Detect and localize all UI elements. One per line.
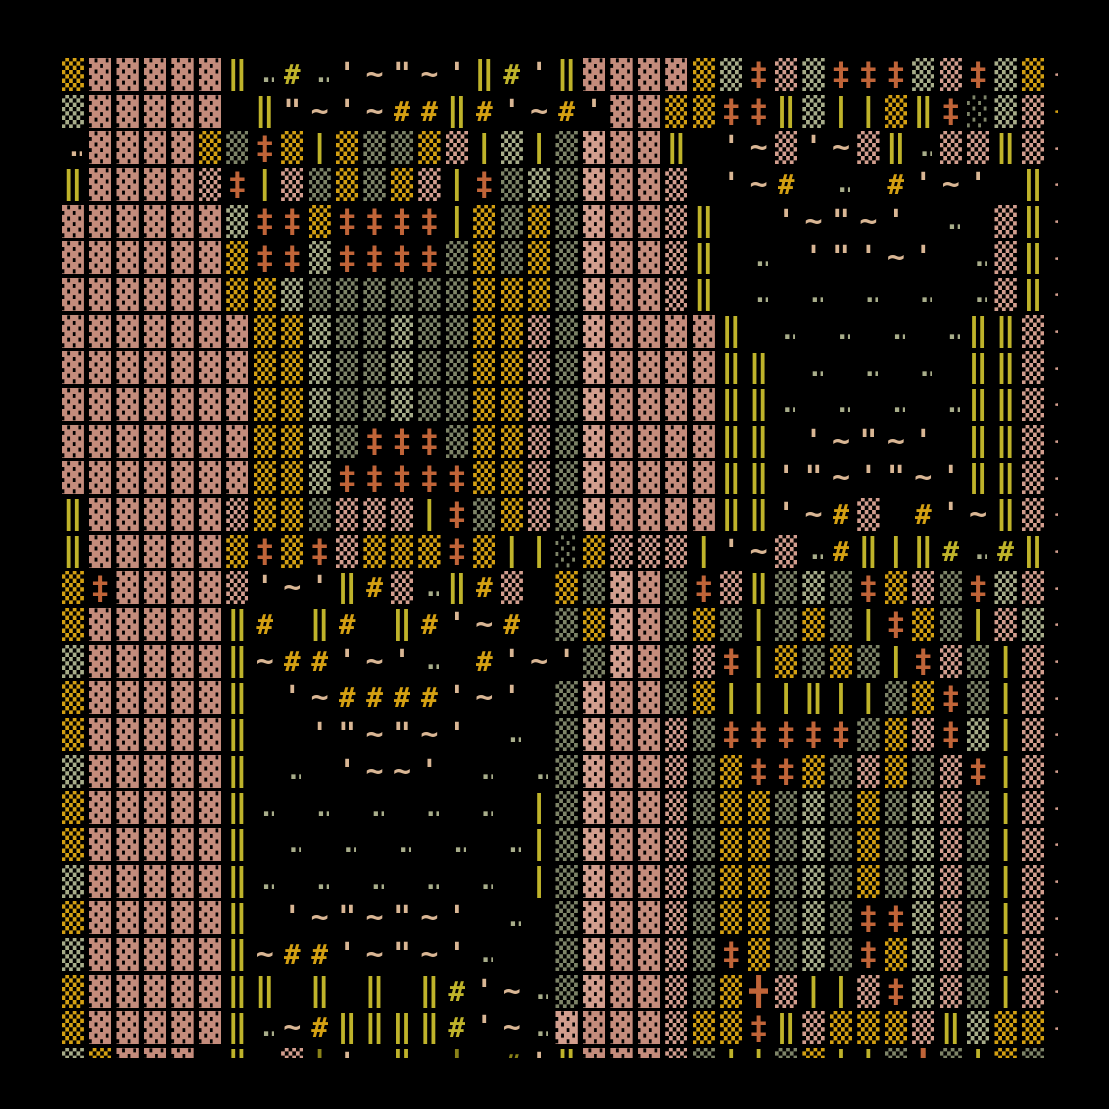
glyph-cell: ▒ [964,129,991,166]
glyph-cell [882,496,909,533]
glyph-cell: ▒ [800,899,827,936]
glyph-cell: ▓ [663,313,690,350]
glyph-cell [525,606,552,643]
glyph-cell: ▒ [772,899,799,936]
glyph-cell: ' [882,203,909,240]
glyph-cell: { [1047,716,1058,753]
glyph-cell: ~ [745,129,772,166]
glyph-cell [800,313,827,350]
glyph-cell [964,203,991,240]
glyph-cell: ' [937,496,964,533]
glyph-cell: ▒ [800,936,827,973]
glyph-cell: ▓ [608,716,635,753]
glyph-cell: ▒ [855,973,882,1010]
glyph-cell: ▒ [251,423,278,460]
glyph-cell: ‖ [224,753,251,790]
glyph-cell: ‡ [855,56,882,93]
glyph-cell: ▓ [114,716,141,753]
glyph-cell: { [1047,93,1058,130]
glyph-cell: ▒ [471,349,498,386]
glyph-cell: ▓ [608,93,635,130]
glyph-cell: ▒ [59,569,86,606]
glyph-cell: ▒ [937,1046,964,1058]
glyph-cell: .. [306,789,333,826]
glyph-cell: ▓ [608,973,635,1010]
glyph-cell: ▓ [635,349,662,386]
glyph-cell: ‖ [718,459,745,496]
glyph-cell: ▓ [141,826,168,863]
glyph-cell [471,1046,498,1058]
glyph-cell: | [827,973,854,1010]
glyph-cell: ' [525,56,552,93]
glyph-cell: ‖ [443,569,470,606]
glyph-cell: ▒ [498,423,525,460]
glyph-cell: .. [498,826,525,863]
glyph-cell: ▓ [141,606,168,643]
glyph-cell: | [525,789,552,826]
glyph-cell: ▒ [1019,643,1046,680]
glyph-cell: ▒ [663,569,690,606]
glyph-cell: ▒ [498,459,525,496]
glyph-cell: ▓ [86,349,113,386]
glyph-cell: ▒ [498,569,525,606]
glyph-cell: ▓ [169,569,196,606]
glyph-cell: ▒ [663,93,690,130]
glyph-cell: ▓ [86,423,113,460]
glyph-cell: { [1047,56,1058,93]
glyph-cell: ▒ [800,1009,827,1046]
glyph-cell: ▒ [333,423,360,460]
glyph-cell: ▒ [937,129,964,166]
glyph-row: ▓▓▓▓▓▓▓▒▒▒▒‡‡‡▒▒▒▒▒▓▓▓▓▓‖‖'~"~'‖‖▒{ [59,423,1058,460]
glyph-cell: ▓ [635,826,662,863]
glyph-cell [333,973,360,1010]
glyph-cell: .. [910,276,937,313]
glyph-cell: ‡ [279,239,306,276]
glyph-cell: ‖ [992,129,1019,166]
glyph-cell: ▒ [663,203,690,240]
glyph-cell [910,313,937,350]
glyph-cell: ▒ [882,93,909,130]
glyph-cell: ~ [471,606,498,643]
glyph-cell: ▓ [635,239,662,276]
glyph-cell: ▓ [86,313,113,350]
glyph-cell: ‡ [333,239,360,276]
glyph-cell [882,349,909,386]
glyph-cell: ‖ [718,349,745,386]
glyph-cell: ▓ [608,56,635,93]
glyph-cell: ▒ [306,203,333,240]
glyph-cell: ‖ [745,569,772,606]
glyph-cell: ▓ [635,386,662,423]
glyph-cell: ▓ [196,753,223,790]
glyph-cell: ‖ [1019,166,1046,203]
glyph-cell: " [279,93,306,130]
glyph-cell: ▒ [471,203,498,240]
glyph-cell: ▒ [251,386,278,423]
glyph-cell: ▒ [964,1009,991,1046]
glyph-cell: ‖ [718,313,745,350]
glyph-cell: ~ [416,716,443,753]
glyph-cell: ▒ [718,1009,745,1046]
glyph-cell: ▒ [59,863,86,900]
glyph-cell: ▒ [333,533,360,570]
glyph-cell: ▒ [855,129,882,166]
glyph-cell: ▓ [196,533,223,570]
glyph-cell [772,423,799,460]
glyph-cell: ▓ [196,386,223,423]
glyph-cell: ▒ [827,643,854,680]
glyph-cell: | [992,899,1019,936]
glyph-cell [251,753,278,790]
glyph-cell: ▓ [608,276,635,313]
glyph-cell: | [882,533,909,570]
glyph-cell: ▓ [608,753,635,790]
glyph-cell: ~ [416,56,443,93]
glyph-cell: ▒ [663,643,690,680]
glyph-cell: ▓ [141,679,168,716]
glyph-cell: ▒ [910,1009,937,1046]
glyph-cell: ▒ [718,56,745,93]
glyph-cell: ▒ [553,753,580,790]
glyph-cell: .. [251,789,278,826]
glyph-cell: ~ [279,1009,306,1046]
glyph-cell: ▓ [224,386,251,423]
glyph-cell: ▓ [86,496,113,533]
glyph-cell: ▓ [690,349,717,386]
glyph-cell: | [827,93,854,130]
glyph-cell: ' [772,203,799,240]
glyph-row: ▓▓▓▓▓▓▓▒▒▒▒▒▒▒▒▒▒▒▒▓▓▓▓▓‖‖......‖‖▒{ [59,349,1058,386]
glyph-cell: ‖ [718,423,745,460]
glyph-cell: ‡ [745,93,772,130]
glyph-cell: ▒ [772,643,799,680]
glyph-cell: ▒ [992,1009,1019,1046]
glyph-cell: ▓ [635,753,662,790]
glyph-cell: ▒ [553,899,580,936]
glyph-cell: ▓ [114,386,141,423]
glyph-cell: ~ [416,899,443,936]
glyph-cell: ‖ [992,313,1019,350]
glyph-cell: ▒ [663,166,690,203]
glyph-cell: ▒ [690,789,717,826]
glyph-cell: ▓ [580,936,607,973]
glyph-cell: ' [471,973,498,1010]
glyph-cell: ~ [882,423,909,460]
glyph-cell: ▒ [663,716,690,753]
glyph-cell: ‡ [279,203,306,240]
glyph-cell: ▒ [306,496,333,533]
glyph-cell: ▓ [580,789,607,826]
glyph-cell: # [471,643,498,680]
glyph-cell [718,239,745,276]
glyph-cell: ▓ [114,239,141,276]
glyph-cell: # [910,496,937,533]
glyph-cell: ▒ [59,643,86,680]
glyph-cell: | [306,129,333,166]
glyph-cell: .. [910,129,937,166]
glyph-cell: ▓ [663,386,690,423]
glyph-cell: ▓ [196,936,223,973]
glyph-cell: | [525,129,552,166]
glyph-cell: ~ [827,129,854,166]
glyph-cell [279,716,306,753]
glyph-cell: ‡ [251,129,278,166]
glyph-cell: .. [498,899,525,936]
glyph-cell: ‖ [224,606,251,643]
glyph-cell: ▓ [224,423,251,460]
glyph-cell: ' [471,1009,498,1046]
glyph-cell: ~ [306,679,333,716]
glyph-cell: # [772,166,799,203]
glyph-cell: ' [525,1046,552,1058]
glyph-cell: ▓ [580,679,607,716]
glyph-cell: | [855,679,882,716]
glyph-cell: | [992,789,1019,826]
glyph-cell: ▒ [1019,1009,1046,1046]
glyph-cell: ‡ [416,423,443,460]
glyph-cell: ~ [800,496,827,533]
glyph-row: ▒▓▓▓▓▓‖#‖#‖#'~#▒▒▓▓▒▒▒|▒▒▒|‡▒▒|▒▒{ [59,606,1058,643]
glyph-cell: ▒ [553,313,580,350]
glyph-cell: ░ [553,533,580,570]
glyph-cell: ‖ [224,789,251,826]
glyph-cell: ▒ [553,496,580,533]
glyph-cell: ▓ [141,533,168,570]
glyph-cell: ▓ [635,1046,662,1058]
glyph-cell: ▓ [663,496,690,533]
glyph-cell: ▓ [59,423,86,460]
glyph-cell: ~ [827,423,854,460]
glyph-cell: | [992,716,1019,753]
glyph-cell: ▓ [86,643,113,680]
glyph-cell: ▓ [580,386,607,423]
glyph-cell: ▓ [114,606,141,643]
glyph-cell: ▓ [86,386,113,423]
glyph-cell: ▒ [690,56,717,93]
glyph-cell: ▓ [635,423,662,460]
glyph-cell: ▒ [718,569,745,606]
glyph-cell: ' [964,166,991,203]
glyph-cell: { [1047,1009,1058,1046]
glyph-row: ▒▓▓▓▓▓‖..~#‖‖‖‖#'~..▓▓▓▓▒▒▒‡‖▒▒▒▒▒‖▒▒▒{ [59,1009,1058,1046]
glyph-cell: ▓ [635,606,662,643]
glyph-cell: ▓ [635,166,662,203]
glyph-cell: ‖ [471,56,498,93]
glyph-cell: ▓ [196,826,223,863]
glyph-cell: .. [964,239,991,276]
glyph-cell: ‖ [416,1009,443,1046]
glyph-cell: ▓ [114,1046,141,1058]
glyph-cell: ~ [361,643,388,680]
glyph-cell: ‖ [224,973,251,1010]
glyph-cell: ‡ [333,459,360,496]
glyph-cell: ‖ [690,276,717,313]
glyph-cell: ▒ [279,166,306,203]
glyph-cell: ‖ [992,459,1019,496]
glyph-cell: ▒ [992,276,1019,313]
glyph-cell: ▒ [1019,789,1046,826]
glyph-cell: ▓ [196,789,223,826]
glyph-cell: ‖ [745,496,772,533]
glyph-cell: ‡ [882,973,909,1010]
glyph-cell: | [745,643,772,680]
glyph-cell: ▓ [635,679,662,716]
glyph-cell: ▓ [86,166,113,203]
glyph-cell: .. [306,863,333,900]
glyph-cell: ▓ [608,643,635,680]
glyph-cell: ▒ [910,679,937,716]
glyph-cell: ‖ [224,716,251,753]
glyph-cell: ‡ [361,239,388,276]
glyph-cell: ▒ [553,349,580,386]
glyph-cell: ▒ [827,863,854,900]
glyph-cell: ▓ [114,166,141,203]
glyph-cell: ▒ [827,606,854,643]
glyph-cell: ▒ [59,789,86,826]
glyph-cell [992,166,1019,203]
glyph-cell: ▒ [964,716,991,753]
glyph-cell: ‡ [910,643,937,680]
glyph-cell: ‖ [1019,203,1046,240]
glyph-cell: ▒ [553,569,580,606]
glyph-cell [910,203,937,240]
glyph-cell: ▓ [580,349,607,386]
glyph-cell: ▒ [224,569,251,606]
glyph-cell: ▓ [196,496,223,533]
glyph-cell: ▓ [580,203,607,240]
glyph-cell: ▒ [910,753,937,790]
glyph-cell: " [388,716,415,753]
glyph-cell [498,863,525,900]
glyph-cell: ▓ [59,459,86,496]
glyph-cell: ' [855,239,882,276]
glyph-cell: ~ [361,936,388,973]
glyph-cell: ▒ [1019,899,1046,936]
glyph-cell: ‖ [992,349,1019,386]
glyph-cell [525,716,552,753]
glyph-cell: ▓ [114,789,141,826]
glyph-cell: ▒ [59,679,86,716]
glyph-cell: # [306,1009,333,1046]
glyph-cell [471,899,498,936]
glyph-cell: ▓ [635,276,662,313]
glyph-cell: | [992,679,1019,716]
glyph-cell: ' [416,753,443,790]
glyph-cell: ▒ [553,386,580,423]
glyph-cell: ▒ [306,386,333,423]
glyph-cell: ▒ [471,313,498,350]
glyph-cell: ▒ [224,239,251,276]
glyph-cell: # [279,56,306,93]
glyph-cell [279,973,306,1010]
glyph-cell: ▒ [937,643,964,680]
glyph-cell: ▓ [196,606,223,643]
glyph-cell [279,863,306,900]
glyph-cell: ▒ [361,349,388,386]
glyph-cell: .. [498,716,525,753]
glyph-cell: ▒ [443,129,470,166]
glyph-cell: ▓ [690,313,717,350]
glyph-cell: { [1047,973,1058,1010]
glyph-cell: .. [964,533,991,570]
glyph-cell: ‖ [59,533,86,570]
glyph-cell: ‡ [251,533,278,570]
glyph-cell: | [718,679,745,716]
glyph-cell: ▒ [663,239,690,276]
glyph-cell: ‖ [745,386,772,423]
glyph-cell: ▒ [251,496,278,533]
glyph-cell: ▓ [608,826,635,863]
glyph-cell: ‖ [992,423,1019,460]
glyph-row: ▒▓▓▓▓▓‖..#..'~"~'‖#'‖▓▓▓▓▒▒‡▒▒‡‡‡▒▒‡▒▒{ [59,56,1058,93]
glyph-cell: ▓ [169,863,196,900]
glyph-cell: ▓ [141,789,168,826]
glyph-cell: ▒ [690,1009,717,1046]
glyph-row: ▒▒▓▓▓‖▒|'‖|#'‖▓▓▓▒▒||▒▒||▒╋▒|▒▒{ [59,1046,1058,1058]
glyph-cell: ▓ [86,56,113,93]
glyph-cell: .. [525,1009,552,1046]
glyph-cell: ▒ [800,643,827,680]
glyph-cell: ▓ [114,826,141,863]
glyph-cell: ▒ [690,973,717,1010]
glyph-cell: ‡ [306,533,333,570]
glyph-cell: ' [910,239,937,276]
glyph-cell: ▒ [525,313,552,350]
glyph-cell: ▓ [553,1009,580,1046]
glyph-cell: ▒ [855,826,882,863]
glyph-cell: ▒ [663,533,690,570]
glyph-cell [937,423,964,460]
glyph-cell: ▒ [525,349,552,386]
glyph-cell: ~ [361,899,388,936]
glyph-cell: ▒ [59,716,86,753]
glyph-cell: | [251,166,278,203]
glyph-cell: ▒ [663,936,690,973]
glyph-cell: ‡ [86,569,113,606]
glyph-cell: ~ [279,569,306,606]
glyph-cell: ▒ [663,863,690,900]
glyph-cell: ▒ [279,496,306,533]
glyph-cell: ▓ [59,239,86,276]
glyph-cell: ▓ [141,496,168,533]
glyph-cell: ▒ [580,533,607,570]
glyph-cell: ▓ [169,1009,196,1046]
glyph-row: ▓▓▓▓▓▓▒‡‡▒‡‡‡‡▒▒▒▒▒▓▓▓▒‖..'"'~'..▒‖{ [59,239,1058,276]
glyph-cell: ▓ [169,386,196,423]
glyph-cell: ▒ [663,1009,690,1046]
glyph-cell: ▒ [306,166,333,203]
glyph-cell: ▒ [59,56,86,93]
glyph-cell: ▒ [882,863,909,900]
glyph-cell: ‖ [745,349,772,386]
glyph-cell: " [388,936,415,973]
glyph-cell: ▒ [690,606,717,643]
glyph-cell: ‡ [772,753,799,790]
glyph-cell: ▓ [608,459,635,496]
glyph-cell: ' [443,716,470,753]
glyph-cell: ▓ [608,349,635,386]
glyph-cell: ▓ [196,423,223,460]
glyph-cell: ▒ [59,1046,86,1058]
glyph-cell: | [443,166,470,203]
glyph-cell: ▒ [1019,1046,1046,1058]
glyph-cell: ‖ [1019,276,1046,313]
glyph-cell [937,276,964,313]
glyph-cell: ▒ [992,203,1019,240]
glyph-cell [718,203,745,240]
glyph-cell: ▓ [663,56,690,93]
